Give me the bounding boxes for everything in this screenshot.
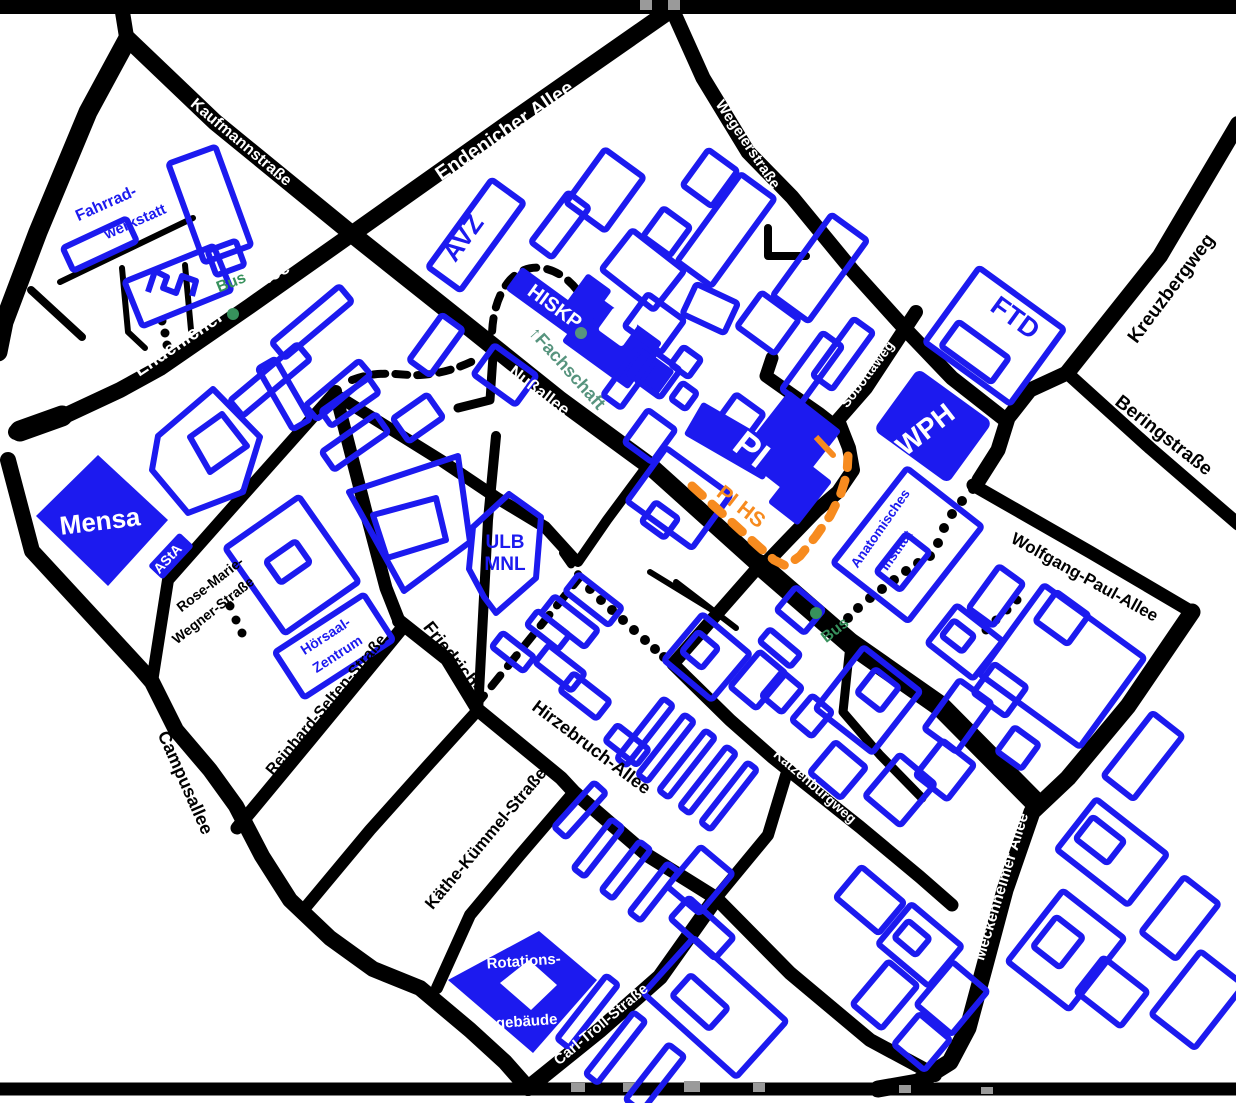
svg-text:MNL: MNL xyxy=(484,554,526,575)
svg-text:ULB: ULB xyxy=(485,532,524,553)
